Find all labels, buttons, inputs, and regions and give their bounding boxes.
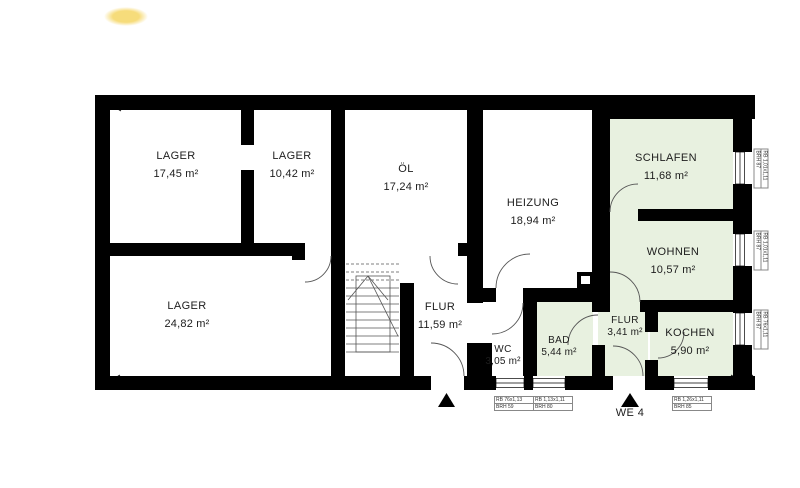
wall-notch [581,276,590,284]
window-note-wohnen: RB 1,01x1,11 BRH 87 [754,231,769,271]
floor-plan: LAGER 17,45 m² LAGER 10,42 m² ÖL 17,24 m… [0,0,800,488]
entrance-we4-triangle-icon [621,393,639,407]
wc-door-arc [492,303,523,334]
entrance-left-door-arc [431,343,464,376]
window-kochen-bottom [674,379,708,388]
window-note-bad: RB 1,13x1,11 BRH 80 [533,396,573,411]
lager-24-door-arc [305,256,331,282]
floor-plan-drawing [0,0,800,488]
window-bad [533,379,565,388]
window-wc [496,379,524,388]
window-note-schlafen: RB 1,01x1,11 BRH 87 [754,149,769,189]
entrance-left-triangle-icon [438,393,455,407]
entrance-we4-label: WE 4 [616,407,645,419]
window-note-kochen-right: RB 76x1,11 BRH 87 [754,310,769,350]
oel-door-arc [430,256,458,284]
room-label-schlafen: SCHLAFEN 11,68 m² [635,152,697,183]
window-schlafen [736,152,745,184]
room-label-flur-1159: FLUR 11,59 m² [418,301,462,332]
window-note-wc: RB 76x1,13 BRH 59 [494,396,534,411]
room-label-oel: ÖL 17,24 m² [383,163,428,194]
room-label-wc: WC 3,05 m² [485,344,520,367]
room-label-lager-1042: LAGER 10,42 m² [269,150,314,181]
room-label-kochen: KOCHEN 5,90 m² [665,327,714,358]
staircase [346,264,399,352]
room-label-bad: BAD 5,44 m² [541,335,576,358]
window-wohnen [736,234,745,266]
heizung-door-arc [496,254,530,288]
room-label-flur-341: FLUR 3,41 m² [607,315,642,338]
room-label-heizung: HEIZUNG 18,94 m² [507,197,559,228]
window-kochen-right [736,313,745,345]
window-note-kochen-bottom: RB 1,26x1,11 BRH 85 [672,396,712,411]
room-label-wohnen: WOHNEN 10,57 m² [647,246,700,277]
room-label-lager-2482: LAGER 24,82 m² [164,300,209,331]
room-label-lager-1745: LAGER 17,45 m² [153,150,198,181]
